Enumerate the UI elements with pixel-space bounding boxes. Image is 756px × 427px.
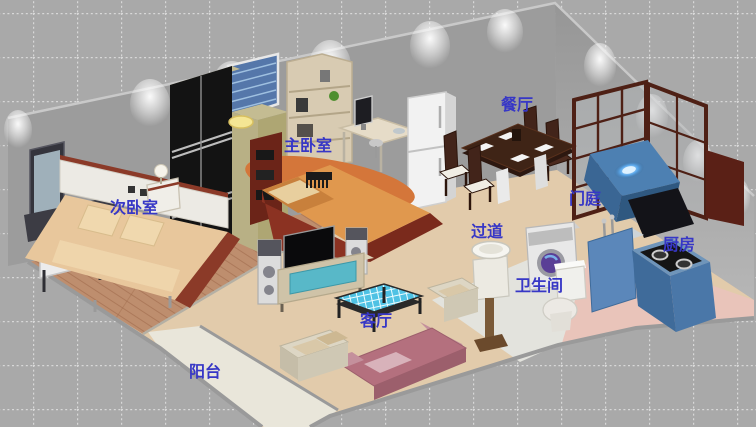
label-kitchen: 厨房 xyxy=(663,235,695,254)
label-master-bedroom: 主卧室 xyxy=(284,136,332,155)
label-hallway: 过道 xyxy=(471,222,503,241)
label-living-room: 客厅 xyxy=(360,311,392,330)
label-bathroom: 卫生间 xyxy=(515,276,563,295)
label-balcony: 阳台 xyxy=(189,362,221,381)
ceiling-lamp xyxy=(229,116,253,128)
apartment-3d-render: 次卧室 主卧室 餐厅 门庭 厨房 过道 卫生间 客厅 阳台 xyxy=(0,0,756,427)
cabinet-maroon xyxy=(706,150,744,226)
label-entrance-hall: 门庭 xyxy=(569,189,601,208)
label-secondary-bedroom: 次卧室 xyxy=(110,198,158,217)
label-dining-room: 餐厅 xyxy=(500,95,533,114)
